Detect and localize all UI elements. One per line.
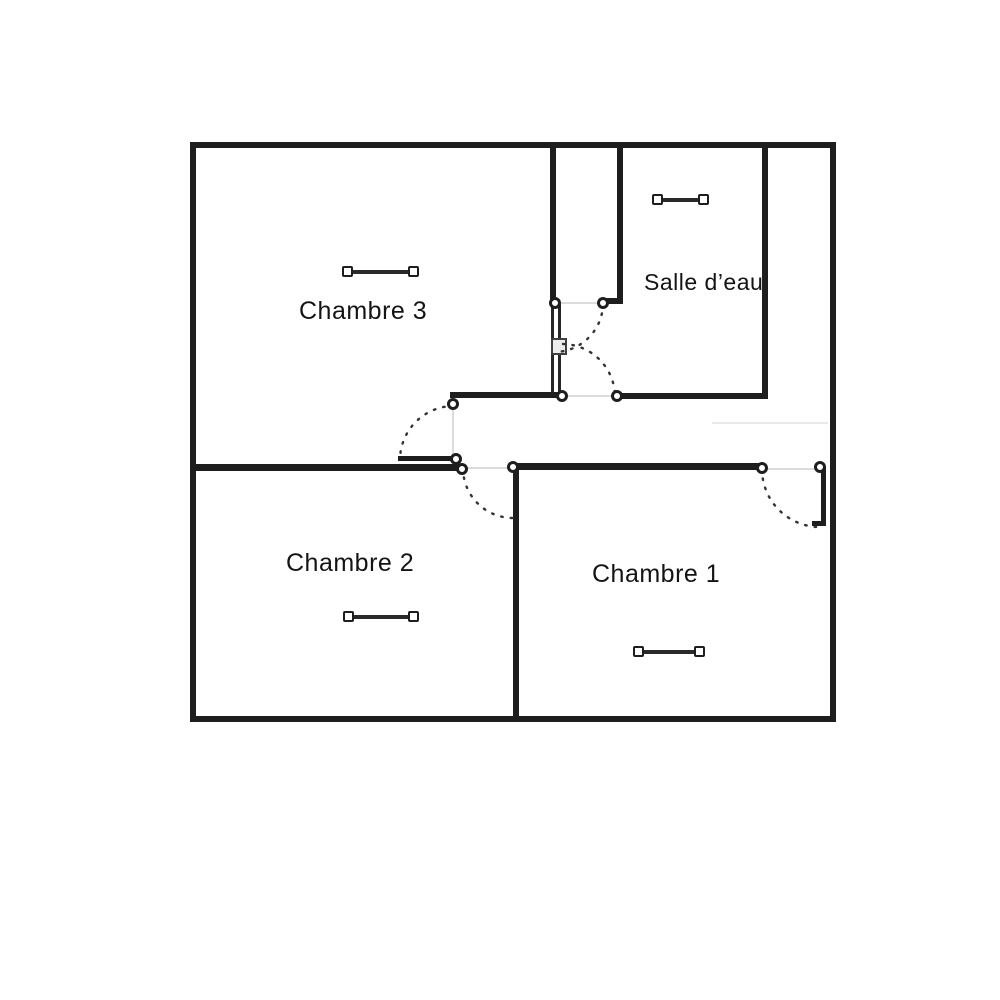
wall-node (456, 463, 468, 475)
window-bar (349, 615, 414, 619)
door-arc-chambre1 (762, 469, 820, 527)
wall-node (597, 297, 609, 309)
floor-plan: Chambre 3 Salle d’eau Chambre 2 Chambre … (0, 0, 1000, 1000)
window-cap (343, 611, 354, 622)
wall-node (549, 297, 561, 309)
door-arc-chambre2 (463, 468, 513, 518)
room-label-salledeau: Salle d’eau (644, 269, 763, 296)
wall-node (611, 390, 623, 402)
window-bar (348, 270, 414, 274)
door-arcs-layer (0, 0, 1000, 1000)
room-label-chambre2: Chambre 2 (286, 549, 414, 578)
room-label-chambre3: Chambre 3 (299, 297, 427, 326)
wall-node (507, 461, 519, 473)
window-cap (342, 266, 353, 277)
window-cap (408, 611, 419, 622)
window-cap (633, 646, 644, 657)
window-bar (639, 650, 700, 654)
window-cap (408, 266, 419, 277)
wall-node (447, 398, 459, 410)
wall-node (556, 390, 568, 402)
window-cap (698, 194, 709, 205)
door-arc-salledeau (563, 344, 615, 396)
wall-node (814, 461, 826, 473)
window-cap (652, 194, 663, 205)
wall-node (756, 462, 768, 474)
door-arc-chambre3 (400, 406, 454, 460)
room-label-chambre1: Chambre 1 (592, 560, 720, 589)
window-cap (694, 646, 705, 657)
